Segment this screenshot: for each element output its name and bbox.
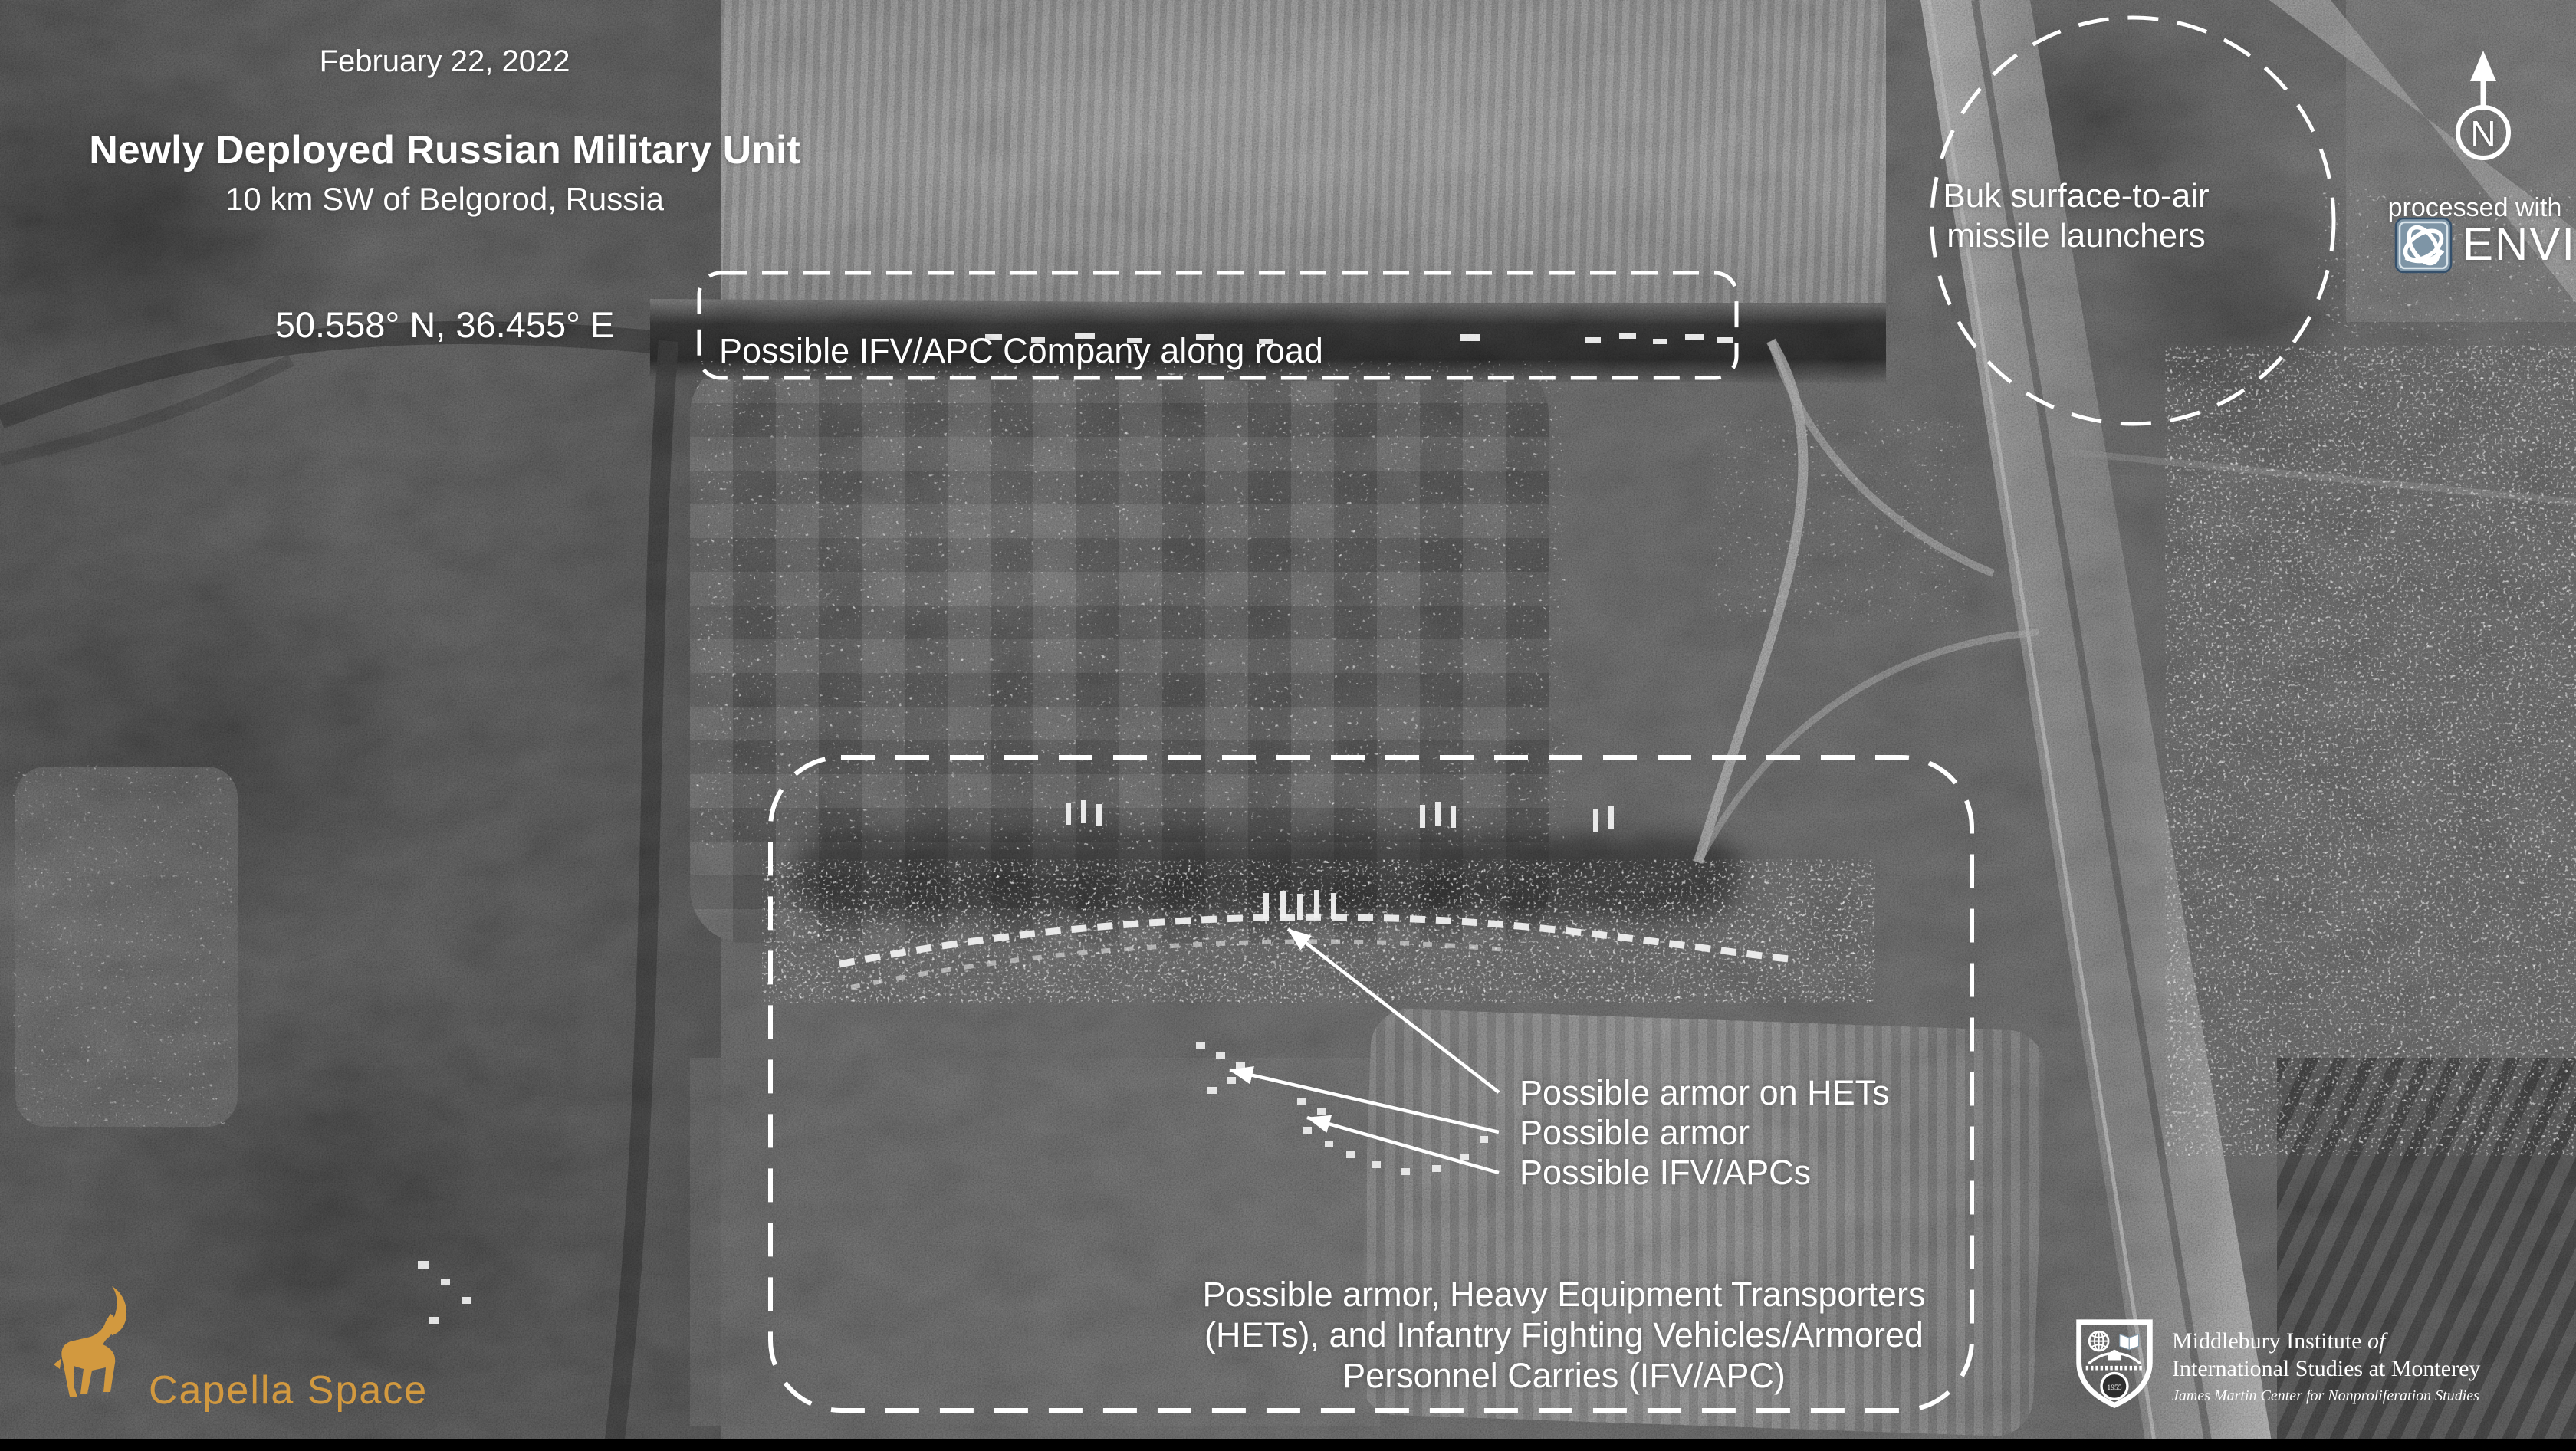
- middlebury-line3: James Martin Center for Nonproliferation…: [2172, 1387, 2480, 1405]
- capella-ibex-icon: [44, 1285, 144, 1400]
- page-title: Newly Deployed Russian Military Unit: [61, 127, 828, 173]
- pointer-arrow-armor: [1230, 1070, 1499, 1132]
- pointer-arrow-hets: [1288, 929, 1499, 1092]
- pointer-label-armor: Possible armor: [1520, 1113, 1890, 1153]
- buk-label-line2: missile launchers: [1900, 216, 2252, 256]
- middlebury-wordmark: Middlebury Institute of International St…: [2172, 1328, 2480, 1405]
- middlebury-shield-icon: 1955: [2075, 1318, 2154, 1409]
- pointer-labels: Possible armor on HETs Possible armor Po…: [1520, 1073, 1890, 1193]
- date-label: February 22, 2022: [61, 44, 828, 79]
- capella-wordmark: Capella Space: [149, 1367, 428, 1413]
- assembly-area-label: Possible armor, Heavy Equipment Transpor…: [1112, 1274, 2016, 1396]
- pointer-arrows: [1230, 929, 1499, 1173]
- assembly-label-line1: Possible armor, Heavy Equipment Transpor…: [1112, 1274, 2016, 1315]
- middlebury-shield-year: 1955: [2107, 1384, 2121, 1392]
- location-subtitle: 10 km SW of Belgorod, Russia: [61, 181, 828, 218]
- coordinates-label: 50.558° N, 36.455° E: [61, 304, 828, 346]
- pointer-label-hets: Possible armor on HETs: [1520, 1073, 1890, 1113]
- pointer-label-ifv: Possible IFV/APCs: [1520, 1153, 1890, 1193]
- buk-label: Buk surface-to-air missile launchers: [1900, 176, 2252, 256]
- middlebury-line1: Middlebury Institute of: [2172, 1328, 2480, 1355]
- assembly-label-line2: (HETs), and Infantry Fighting Vehicles/A…: [1112, 1315, 2016, 1355]
- buk-label-line1: Buk surface-to-air: [1900, 176, 2252, 216]
- envi-wordmark: ENVI: [2463, 218, 2576, 271]
- assembly-label-line3: Personnel Carries (IFV/APC): [1112, 1355, 2016, 1396]
- bottom-black-bar: [0, 1439, 2576, 1451]
- envi-logo-icon: [2394, 217, 2453, 274]
- north-letter: N: [2458, 112, 2509, 155]
- sar-annotated-image: February 22, 2022 Newly Deployed Russian…: [0, 0, 2576, 1451]
- road-company-label: Possible IFV/APC Company along road: [719, 331, 1323, 371]
- middlebury-line2: International Studies at Monterey: [2172, 1355, 2480, 1383]
